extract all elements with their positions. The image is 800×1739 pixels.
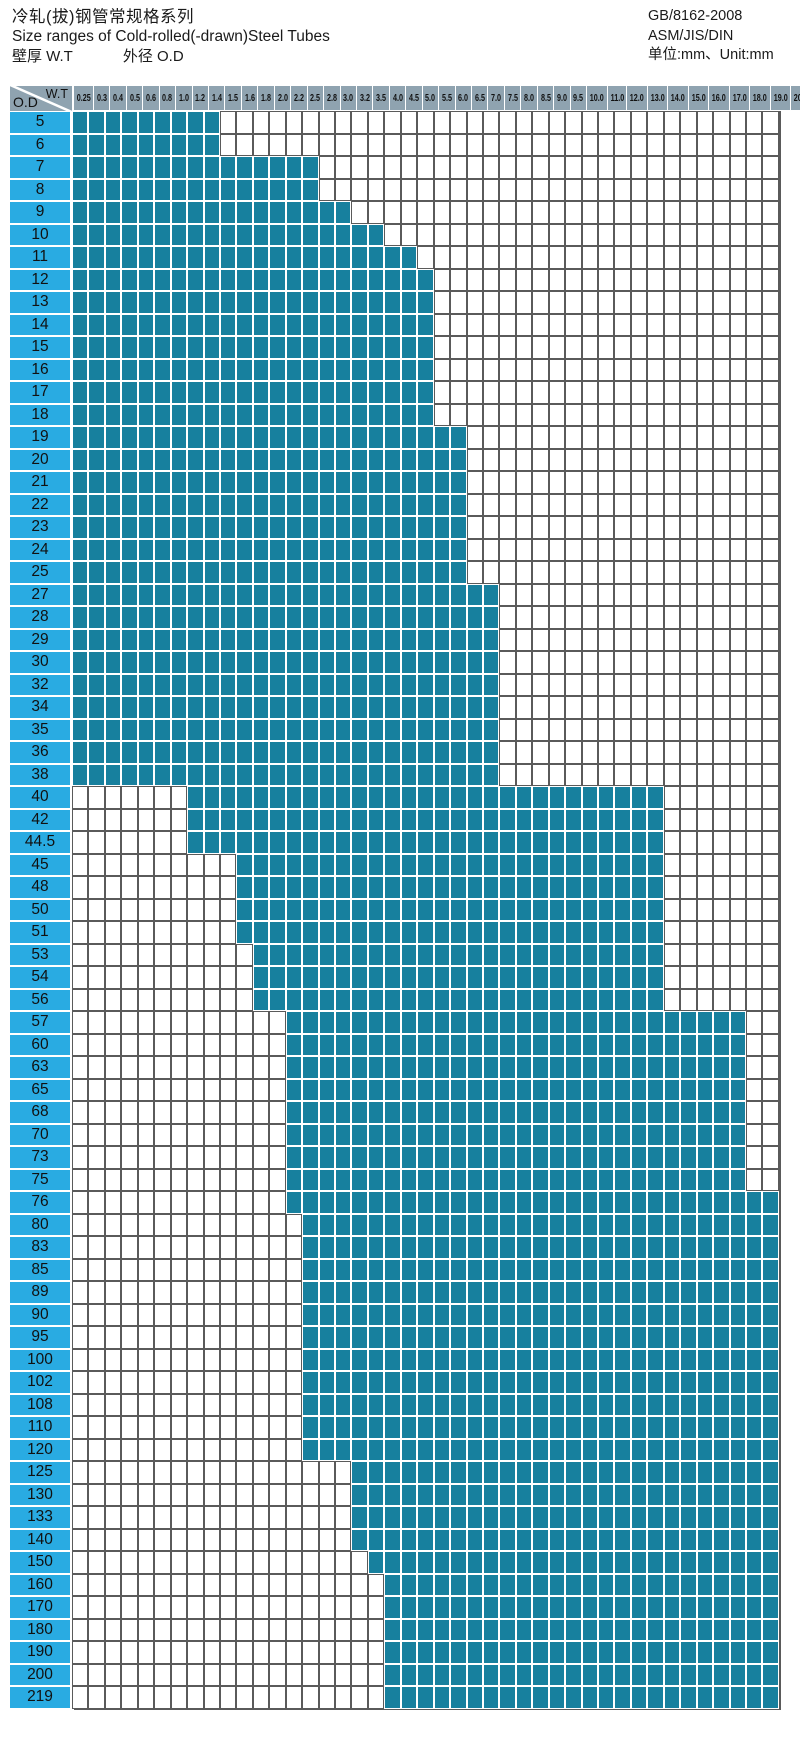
matrix-cell — [516, 764, 532, 787]
matrix-cell — [746, 494, 762, 517]
matrix-cell — [614, 1349, 630, 1372]
matrix-cell — [762, 1146, 778, 1169]
matrix-cell — [302, 651, 318, 674]
matrix-cell — [499, 1011, 515, 1034]
matrix-cell — [647, 1124, 663, 1147]
matrix-cell — [401, 1326, 417, 1349]
matrix-cell — [483, 111, 499, 134]
matrix-cell — [565, 291, 581, 314]
matrix-cell — [335, 314, 351, 337]
matrix-cell — [614, 786, 630, 809]
matrix-cell — [746, 471, 762, 494]
table-row: 75 — [10, 1169, 800, 1192]
matrix-cell — [483, 1326, 499, 1349]
matrix-cell — [598, 1169, 614, 1192]
matrix-cell — [582, 224, 598, 247]
matrix-cell — [565, 426, 581, 449]
table-row: 38 — [10, 764, 800, 787]
matrix-cell — [746, 989, 762, 1012]
matrix-cell — [614, 764, 630, 787]
matrix-cell — [549, 156, 565, 179]
matrix-cell — [450, 246, 466, 269]
matrix-cell — [335, 1596, 351, 1619]
matrix-cell — [171, 1079, 187, 1102]
od-label-cell: 24 — [10, 539, 72, 562]
matrix-cell — [582, 854, 598, 877]
wt-header-cell: 3.2 — [357, 86, 373, 111]
matrix-cell — [335, 696, 351, 719]
matrix-cell — [351, 561, 367, 584]
matrix-cell — [532, 1641, 548, 1664]
matrix-cell — [269, 1619, 285, 1642]
matrix-cell — [730, 831, 746, 854]
matrix-cell — [746, 426, 762, 449]
matrix-cell — [154, 809, 170, 832]
matrix-cell — [549, 786, 565, 809]
matrix-cell — [335, 831, 351, 854]
matrix-cell — [516, 1326, 532, 1349]
od-label-cell: 180 — [10, 1619, 72, 1642]
matrix-cell — [351, 1394, 367, 1417]
wt-header-cell: 0.4 — [110, 86, 126, 111]
matrix-cell — [483, 1191, 499, 1214]
matrix-cell — [483, 741, 499, 764]
matrix-cell — [565, 1259, 581, 1282]
matrix-cell — [730, 1146, 746, 1169]
matrix-cell — [204, 224, 220, 247]
matrix-cell — [171, 1596, 187, 1619]
matrix-cell — [368, 359, 384, 382]
matrix-cell — [664, 404, 680, 427]
matrix-cell — [253, 1169, 269, 1192]
matrix-cell — [204, 1124, 220, 1147]
matrix-cell — [664, 561, 680, 584]
matrix-cell — [450, 651, 466, 674]
matrix-cell — [401, 1281, 417, 1304]
matrix-cell — [335, 1236, 351, 1259]
matrix-cell — [499, 291, 515, 314]
matrix-cell — [138, 1619, 154, 1642]
table-row: 29 — [10, 629, 800, 652]
matrix-cell — [516, 156, 532, 179]
matrix-cell — [384, 1124, 400, 1147]
matrix-cell — [236, 876, 252, 899]
matrix-cell — [730, 764, 746, 787]
matrix-cell — [368, 1394, 384, 1417]
matrix-cell — [302, 1664, 318, 1687]
matrix-cell — [335, 719, 351, 742]
matrix-cell — [434, 1416, 450, 1439]
matrix-cell — [368, 314, 384, 337]
matrix-cell — [434, 269, 450, 292]
matrix-cell — [549, 674, 565, 697]
page-title-zh: 冷轧(拔)钢管常规格系列 — [12, 7, 330, 27]
matrix-cell — [565, 944, 581, 967]
matrix-cell — [762, 786, 778, 809]
matrix-cell — [121, 111, 137, 134]
matrix-cell — [121, 584, 137, 607]
matrix-cell — [565, 269, 581, 292]
matrix-cell — [384, 1596, 400, 1619]
matrix-cell — [516, 426, 532, 449]
matrix-cell — [631, 426, 647, 449]
matrix-cell — [171, 1056, 187, 1079]
matrix-cell — [631, 719, 647, 742]
od-label-cell: 65 — [10, 1079, 72, 1102]
matrix-cell — [335, 224, 351, 247]
matrix-cell — [467, 426, 483, 449]
table-row: 19 — [10, 426, 800, 449]
matrix-cell — [516, 1236, 532, 1259]
matrix-cell — [302, 111, 318, 134]
matrix-cell — [434, 854, 450, 877]
matrix-cell — [220, 1506, 236, 1529]
matrix-cell — [565, 741, 581, 764]
matrix-cell — [269, 1124, 285, 1147]
matrix-cell — [713, 516, 729, 539]
matrix-cell — [549, 1124, 565, 1147]
matrix-cell — [154, 1619, 170, 1642]
matrix-cell — [105, 741, 121, 764]
matrix-cell — [417, 561, 433, 584]
matrix-cell — [417, 584, 433, 607]
matrix-cell — [351, 1484, 367, 1507]
matrix-cell — [614, 471, 630, 494]
matrix-cell — [614, 539, 630, 562]
matrix-cell — [121, 1259, 137, 1282]
matrix-cell — [236, 944, 252, 967]
matrix-cell — [335, 809, 351, 832]
matrix-cell — [697, 786, 713, 809]
matrix-cell — [614, 201, 630, 224]
wt-header-cell: 9.0 — [554, 86, 570, 111]
matrix-cell — [121, 1169, 137, 1192]
matrix-cell — [664, 1551, 680, 1574]
matrix-cell — [302, 674, 318, 697]
matrix-cell — [302, 809, 318, 832]
wt-header-cell: 16.0 — [709, 86, 729, 111]
matrix-cell — [434, 336, 450, 359]
matrix-cell — [730, 1304, 746, 1327]
matrix-cell — [647, 336, 663, 359]
matrix-cell — [730, 1214, 746, 1237]
matrix-cell — [499, 1079, 515, 1102]
matrix-cell — [499, 179, 515, 202]
matrix-cell — [236, 1191, 252, 1214]
matrix-cell — [401, 1416, 417, 1439]
matrix-cell — [187, 1664, 203, 1687]
od-label-cell: 13 — [10, 291, 72, 314]
wt-header-cell: 13.0 — [648, 86, 668, 111]
matrix-cell — [187, 291, 203, 314]
matrix-cell — [697, 246, 713, 269]
matrix-cell — [204, 1506, 220, 1529]
matrix-cell — [762, 291, 778, 314]
matrix-cell — [417, 336, 433, 359]
matrix-cell — [762, 1394, 778, 1417]
matrix-cell — [72, 404, 88, 427]
matrix-cell — [614, 314, 630, 337]
od-label-cell: 32 — [10, 674, 72, 697]
matrix-cell — [204, 1304, 220, 1327]
matrix-cell — [154, 1326, 170, 1349]
table-row: 25 — [10, 561, 800, 584]
table-row: 22 — [10, 494, 800, 517]
matrix-cell — [582, 989, 598, 1012]
matrix-cell — [730, 359, 746, 382]
matrix-cell — [730, 629, 746, 652]
matrix-cell — [335, 539, 351, 562]
matrix-cell — [401, 809, 417, 832]
matrix-cell — [582, 1169, 598, 1192]
matrix-cell — [746, 674, 762, 697]
matrix-cell — [72, 381, 88, 404]
matrix-cell — [467, 1349, 483, 1372]
matrix-cell — [171, 314, 187, 337]
matrix-cell — [368, 584, 384, 607]
matrix-cell — [532, 1259, 548, 1282]
matrix-cell — [434, 561, 450, 584]
matrix-cell — [713, 606, 729, 629]
matrix-cell — [88, 1326, 104, 1349]
matrix-cell — [680, 1371, 696, 1394]
matrix-cell — [220, 741, 236, 764]
matrix-cell — [286, 1259, 302, 1282]
matrix-cell — [351, 719, 367, 742]
matrix-cell — [647, 1214, 663, 1237]
matrix-cell — [121, 831, 137, 854]
matrix-cell — [302, 741, 318, 764]
matrix-cell — [384, 899, 400, 922]
matrix-cell — [483, 651, 499, 674]
od-label-cell: 102 — [10, 1371, 72, 1394]
matrix-cell — [483, 1461, 499, 1484]
matrix-cell — [138, 1506, 154, 1529]
matrix-cell — [532, 1236, 548, 1259]
matrix-cell — [713, 1686, 729, 1709]
matrix-cell — [204, 1371, 220, 1394]
matrix-cell — [664, 1214, 680, 1237]
matrix-cell — [647, 696, 663, 719]
matrix-cell — [236, 1529, 252, 1552]
matrix-cell — [88, 1259, 104, 1282]
matrix-cell — [614, 269, 630, 292]
matrix-cell — [121, 1079, 137, 1102]
matrix-cell — [746, 854, 762, 877]
matrix-cell — [516, 899, 532, 922]
matrix-cell — [72, 1551, 88, 1574]
matrix-cell — [664, 1236, 680, 1259]
matrix-cell — [713, 786, 729, 809]
matrix-cell — [220, 426, 236, 449]
matrix-cell — [614, 134, 630, 157]
matrix-cell — [335, 269, 351, 292]
matrix-cell — [631, 494, 647, 517]
matrix-cell — [220, 111, 236, 134]
matrix-cell — [417, 1461, 433, 1484]
matrix-cell — [286, 134, 302, 157]
matrix-cell — [483, 1236, 499, 1259]
matrix-cell — [220, 696, 236, 719]
matrix-cell — [351, 809, 367, 832]
matrix-cell — [401, 1191, 417, 1214]
matrix-cell — [631, 404, 647, 427]
matrix-cell — [236, 1304, 252, 1327]
matrix-cell — [302, 921, 318, 944]
matrix-cell — [335, 1304, 351, 1327]
matrix-cell — [204, 1529, 220, 1552]
matrix-cell — [121, 134, 137, 157]
matrix-cell — [187, 809, 203, 832]
matrix-cell — [631, 134, 647, 157]
matrix-cell — [598, 1191, 614, 1214]
matrix-cell — [105, 426, 121, 449]
matrix-cell — [105, 179, 121, 202]
matrix-cell — [598, 966, 614, 989]
matrix-cell — [499, 1596, 515, 1619]
matrix-cell — [187, 764, 203, 787]
matrix-cell — [614, 696, 630, 719]
matrix-cell — [565, 1304, 581, 1327]
matrix-cell — [253, 606, 269, 629]
matrix-cell — [730, 246, 746, 269]
matrix-cell — [302, 1371, 318, 1394]
matrix-cell — [236, 201, 252, 224]
matrix-cell — [286, 1124, 302, 1147]
legend-outer-diameter: 外径 O.D — [123, 48, 184, 65]
matrix-cell — [614, 966, 630, 989]
matrix-cell — [434, 696, 450, 719]
matrix-cell — [664, 134, 680, 157]
matrix-cell — [565, 561, 581, 584]
matrix-cell — [269, 1326, 285, 1349]
matrix-cell — [138, 719, 154, 742]
matrix-cell — [138, 966, 154, 989]
matrix-cell — [697, 1349, 713, 1372]
matrix-cell — [105, 1326, 121, 1349]
matrix-cell — [762, 269, 778, 292]
matrix-cell — [450, 426, 466, 449]
matrix-cell — [417, 1484, 433, 1507]
matrix-cell — [434, 381, 450, 404]
matrix-cell — [631, 156, 647, 179]
matrix-cell — [565, 1529, 581, 1552]
matrix-cell — [417, 1686, 433, 1709]
matrix-cell — [236, 269, 252, 292]
od-label-cell: 89 — [10, 1281, 72, 1304]
matrix-cell — [204, 516, 220, 539]
matrix-cell — [549, 1326, 565, 1349]
matrix-cell — [401, 426, 417, 449]
matrix-cell — [598, 1461, 614, 1484]
matrix-cell — [746, 1304, 762, 1327]
matrix-cell — [236, 471, 252, 494]
matrix-cell — [647, 854, 663, 877]
matrix-cell — [335, 764, 351, 787]
matrix-cell — [730, 539, 746, 562]
matrix-cell — [532, 1484, 548, 1507]
matrix-cell — [319, 989, 335, 1012]
matrix-cell — [614, 1146, 630, 1169]
matrix-cell — [204, 494, 220, 517]
matrix-cell — [236, 584, 252, 607]
matrix-cell — [171, 606, 187, 629]
matrix-cell — [351, 156, 367, 179]
matrix-cell — [450, 1439, 466, 1462]
matrix-cell — [664, 1506, 680, 1529]
matrix-cell — [384, 674, 400, 697]
matrix-cell — [88, 719, 104, 742]
matrix-cell — [401, 1371, 417, 1394]
matrix-cell — [368, 1371, 384, 1394]
matrix-cell — [368, 246, 384, 269]
matrix-cell — [680, 111, 696, 134]
matrix-cell — [88, 944, 104, 967]
matrix-cell — [204, 471, 220, 494]
matrix-cell — [746, 561, 762, 584]
matrix-cell — [236, 1281, 252, 1304]
matrix-cell — [384, 876, 400, 899]
matrix-cell — [746, 1034, 762, 1057]
matrix-cell — [582, 1079, 598, 1102]
matrix-cell — [762, 336, 778, 359]
matrix-cell — [450, 1146, 466, 1169]
matrix-cell — [647, 1079, 663, 1102]
od-label-cell: 200 — [10, 1664, 72, 1687]
matrix-cell — [286, 1416, 302, 1439]
matrix-cell — [483, 1394, 499, 1417]
matrix-cell — [631, 291, 647, 314]
table-row: 32 — [10, 674, 800, 697]
matrix-cell — [384, 1259, 400, 1282]
matrix-cell — [664, 1461, 680, 1484]
matrix-cell — [647, 224, 663, 247]
matrix-cell — [269, 1304, 285, 1327]
matrix-cell — [565, 1641, 581, 1664]
matrix-cell — [302, 179, 318, 202]
matrix-cell — [762, 1191, 778, 1214]
matrix-cell — [730, 1079, 746, 1102]
matrix-cell — [351, 1169, 367, 1192]
matrix-cell — [762, 1506, 778, 1529]
matrix-cell — [614, 1371, 630, 1394]
matrix-cell — [614, 1416, 630, 1439]
matrix-cell — [598, 1214, 614, 1237]
matrix-cell — [434, 201, 450, 224]
matrix-cell — [253, 179, 269, 202]
matrix-cell — [762, 1236, 778, 1259]
matrix-cell — [319, 629, 335, 652]
size-matrix: W.T O.D 0.250.30.40.50.60.81.01.21.41.51… — [10, 86, 800, 1709]
matrix-cell — [647, 741, 663, 764]
matrix-cell — [434, 966, 450, 989]
matrix-cell — [368, 921, 384, 944]
wt-header-cell: 18.0 — [750, 86, 770, 111]
matrix-cell — [697, 1551, 713, 1574]
matrix-cell — [187, 944, 203, 967]
matrix-cell — [401, 1506, 417, 1529]
matrix-cell — [631, 1011, 647, 1034]
matrix-cell — [154, 179, 170, 202]
matrix-cell — [220, 1371, 236, 1394]
matrix-cell — [549, 1349, 565, 1372]
matrix-cell — [384, 1304, 400, 1327]
matrix-cell — [236, 651, 252, 674]
matrix-cell — [582, 1596, 598, 1619]
matrix-cell — [614, 494, 630, 517]
matrix-cell — [319, 156, 335, 179]
matrix-cell — [450, 1281, 466, 1304]
